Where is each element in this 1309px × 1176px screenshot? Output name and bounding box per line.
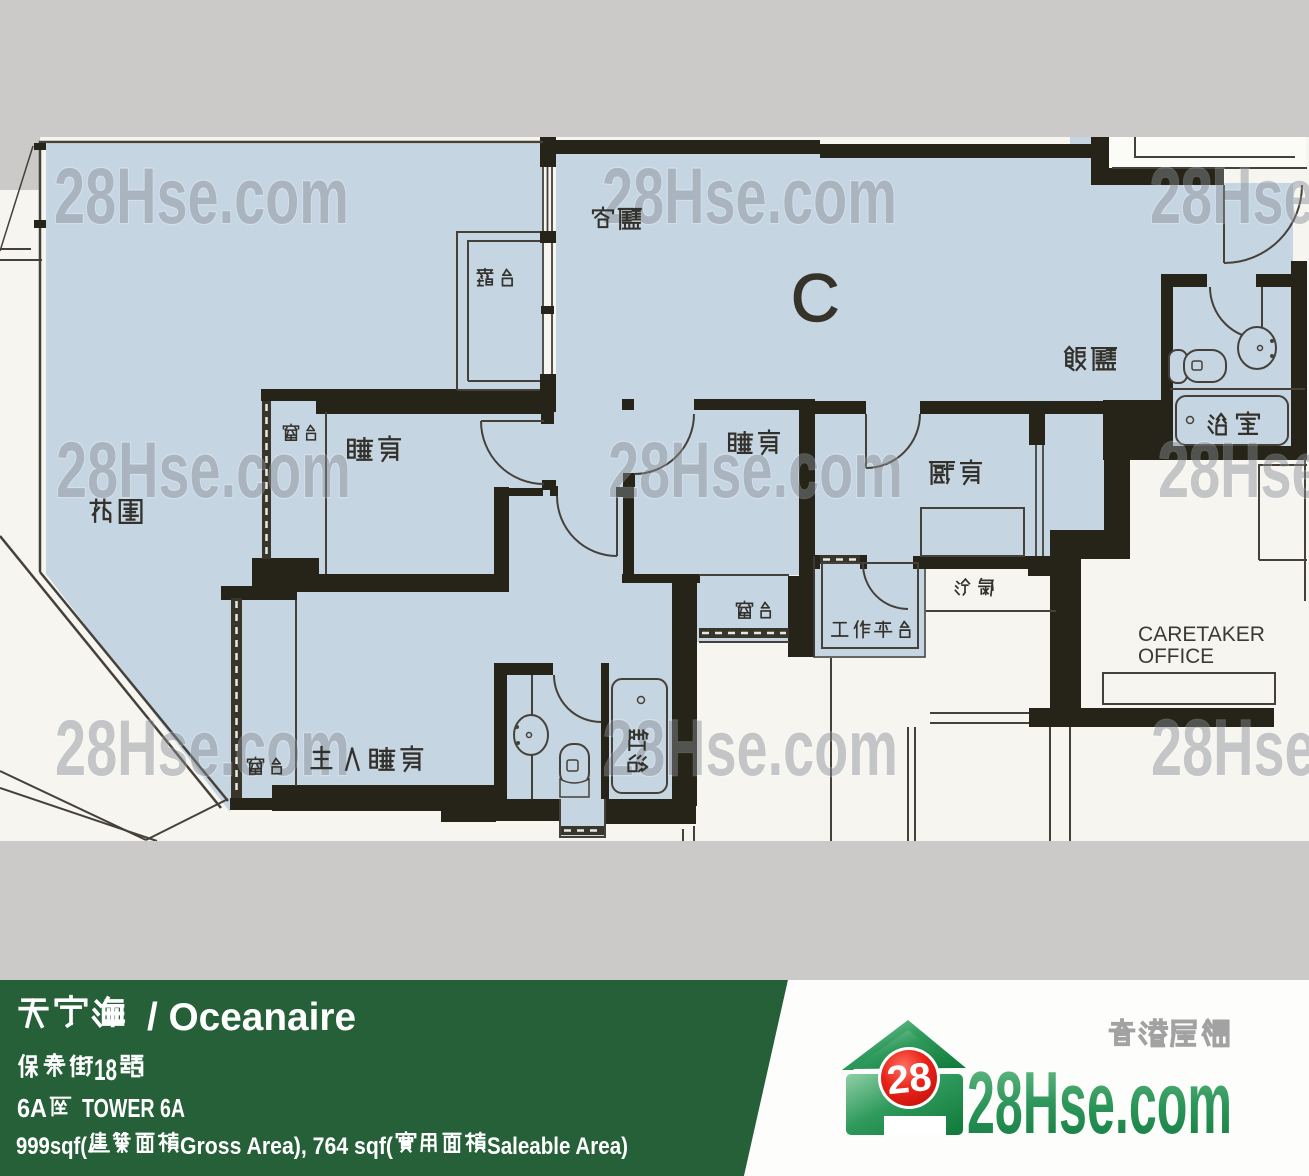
svg-text:28Hse.com: 28Hse.com	[54, 153, 349, 241]
svg-text:Gross Area), 764 sqf(: Gross Area), 764 sqf(	[180, 1133, 393, 1160]
svg-text:TOWER 6A: TOWER 6A	[82, 1093, 185, 1123]
svg-text:28Hse.com: 28Hse.com	[967, 1054, 1232, 1152]
svg-text:28Hse.com: 28Hse.com	[55, 705, 350, 793]
svg-text:18: 18	[94, 1054, 117, 1087]
svg-text:/ Oceanaire: / Oceanaire	[147, 996, 356, 1039]
svg-text:6A: 6A	[17, 1093, 47, 1123]
svg-text:28Hse.com: 28Hse.com	[603, 705, 898, 793]
svg-text:C: C	[791, 261, 839, 336]
svg-text:Saleable Area): Saleable Area)	[487, 1133, 628, 1160]
svg-text:28Hse.com: 28Hse.com	[1158, 427, 1309, 515]
svg-text:999sqf(: 999sqf(	[16, 1133, 87, 1160]
svg-text:CARETAKER: CARETAKER	[1138, 623, 1265, 646]
svg-text:OFFICE: OFFICE	[1138, 645, 1214, 668]
svg-text:28Hse.com: 28Hse.com	[602, 153, 897, 241]
svg-text:28Hse.com: 28Hse.com	[1151, 705, 1309, 793]
svg-text:28: 28	[885, 1055, 934, 1103]
svg-text:28Hse.com: 28Hse.com	[1150, 153, 1309, 241]
svg-text:28Hse.com: 28Hse.com	[608, 427, 903, 515]
